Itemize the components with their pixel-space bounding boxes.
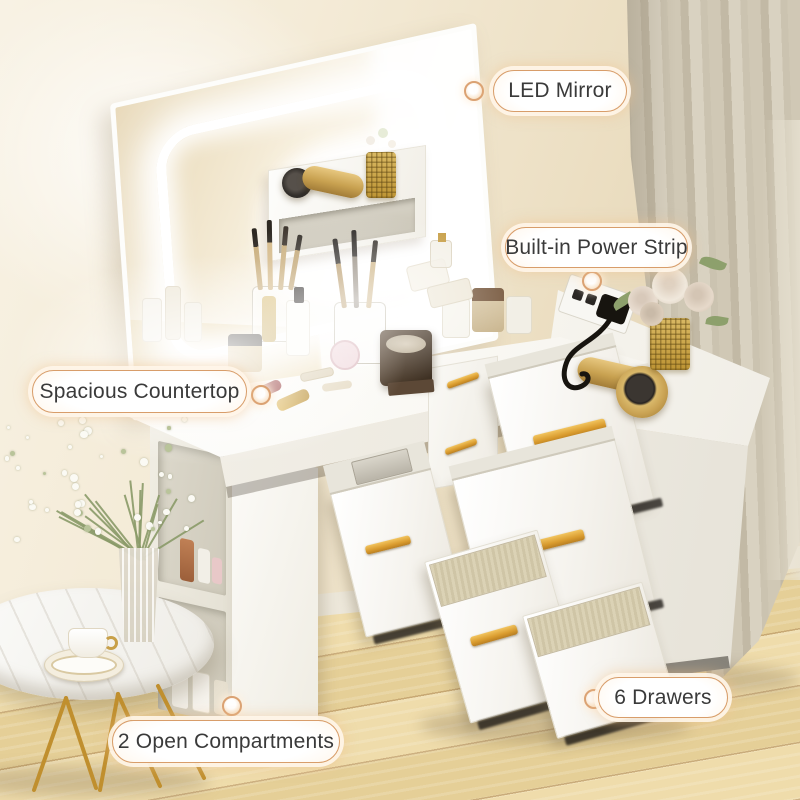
callout-pill-drawers: 6 Drawers	[598, 677, 728, 718]
perfume-bottle	[430, 240, 452, 268]
jar-lid	[472, 288, 504, 301]
gold-mesh-pen-cup	[366, 152, 396, 198]
compartment-top	[158, 441, 226, 596]
rose	[684, 282, 714, 312]
rose	[652, 268, 688, 304]
mini-flower	[366, 136, 375, 145]
power-socket	[571, 289, 584, 302]
jewelry-box	[380, 330, 432, 386]
callout-pill-led-mirror: LED Mirror	[493, 70, 627, 112]
callout-pill-countertop: Spacious Countertop	[32, 370, 247, 413]
open-shelf-side-panel	[232, 440, 318, 748]
dropper-cap	[294, 287, 304, 303]
gold-tube	[262, 296, 276, 342]
gold-mesh-vase	[650, 318, 690, 370]
callout-label: 2 Open Compartments	[118, 730, 334, 754]
copper-bottle	[180, 538, 194, 583]
vanity-product-photo: LED Mirror Built-in Power Strip Spacious…	[0, 0, 800, 800]
jewelry-box-mirror	[386, 335, 426, 353]
cosmetic-bottle	[165, 286, 181, 340]
pink-compact	[330, 340, 360, 370]
callout-pill-power-strip: Built-in Power Strip	[505, 227, 688, 268]
callout-dot-led-mirror	[464, 81, 484, 101]
white-bottle	[198, 548, 210, 585]
hair-dryer-head	[616, 366, 668, 418]
cream-jar	[506, 296, 532, 334]
window-light	[762, 120, 800, 580]
power-socket	[585, 293, 598, 306]
skincare-box	[192, 670, 210, 714]
cup-handle	[104, 636, 118, 650]
glass-jar	[472, 288, 504, 332]
drawer-handle	[365, 535, 412, 555]
mini-flower	[378, 128, 388, 138]
pink-bottle	[212, 557, 222, 585]
bottle-group	[142, 286, 212, 346]
jar-lid	[228, 334, 262, 346]
drawer-handle	[447, 371, 480, 389]
dropper-bottle	[286, 300, 310, 356]
callout-label: Built-in Power Strip	[505, 236, 688, 260]
mini-flower	[388, 140, 396, 148]
callout-dot-countertop	[251, 385, 271, 405]
callout-label: LED Mirror	[508, 79, 612, 103]
callout-dot-compartments	[222, 696, 242, 716]
drawer-handle	[470, 624, 519, 647]
cosmetic-bottle	[184, 302, 202, 342]
callout-label: Spacious Countertop	[40, 380, 240, 404]
cream-jar	[228, 334, 262, 372]
callout-dot-power-strip	[582, 271, 602, 291]
callout-pill-compartments: 2 Open Compartments	[112, 720, 340, 763]
callout-label: 6 Drawers	[614, 686, 712, 710]
drawer-handle	[445, 438, 478, 456]
rose	[640, 302, 664, 326]
cosmetic-bottle	[142, 298, 162, 342]
perfume-cap	[438, 233, 446, 242]
coffee-cup	[68, 628, 108, 658]
